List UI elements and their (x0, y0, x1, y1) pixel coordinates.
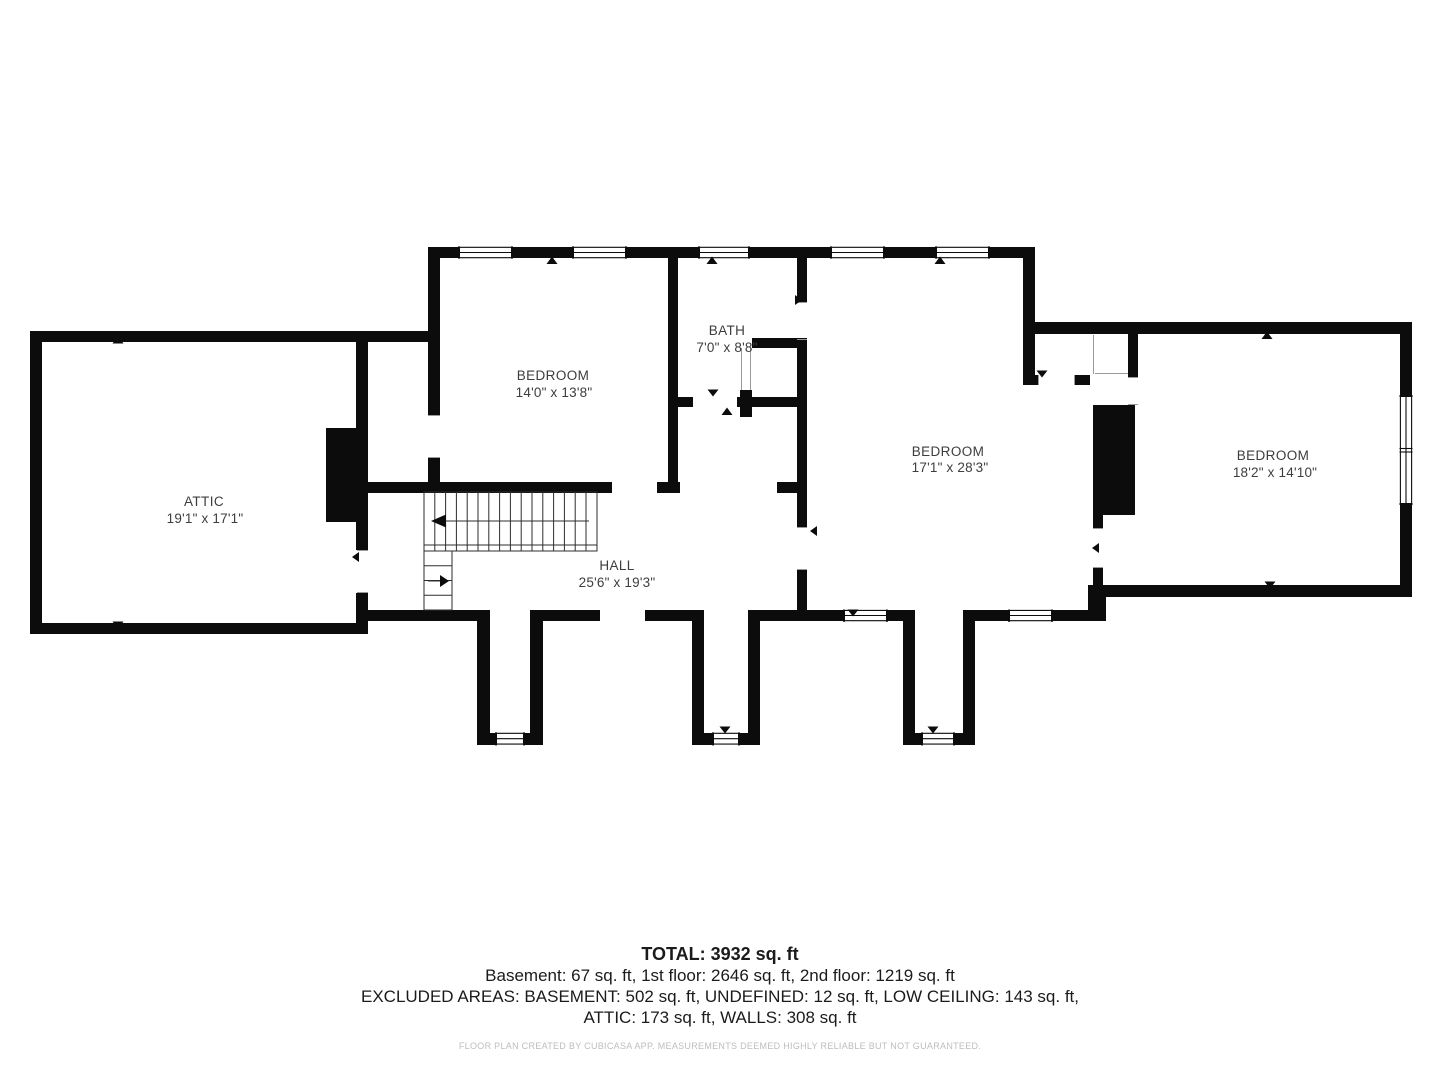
room-label-hall: HALL (599, 558, 634, 573)
room-label-attic: ATTIC (184, 494, 224, 509)
walls (30, 247, 1412, 745)
chimney-right (1093, 405, 1135, 515)
room-dims-hall: 25'6" x 19'3" (579, 575, 656, 590)
room-dims-bedroom-17: 17'1" x 28'3" (912, 460, 989, 475)
window (830, 246, 885, 258)
windows (458, 246, 1413, 745)
excluded-areas-text2: ATTIC: 173 sq. ft, WALLS: 308 sq. ft (0, 1007, 1440, 1028)
room-dims-attic: 19'1" x 17'1" (167, 511, 244, 526)
room-label-bedroom-14: BEDROOM (517, 368, 590, 383)
excluded-areas-text: EXCLUDED AREAS: BASEMENT: 502 sq. ft, UN… (0, 986, 1440, 1007)
window (458, 246, 513, 258)
floor-areas-text: Basement: 67 sq. ft, 1st floor: 2646 sq.… (0, 965, 1440, 986)
room-label-bedroom-17: BEDROOM (912, 444, 985, 459)
window (698, 246, 750, 258)
room-label-bath: BATH (709, 323, 746, 338)
chimney-blocks (326, 405, 1135, 522)
area-summary: TOTAL: 3932 sq. ft Basement: 67 sq. ft, … (0, 944, 1440, 1051)
total-area-text: TOTAL: 3932 sq. ft (0, 944, 1440, 965)
chimney-left (326, 428, 358, 522)
room-dims-bedroom-18: 18'2" x 14'10" (1233, 465, 1317, 480)
stair-entry-arrow (440, 575, 449, 587)
floor-plan-page: { "rooms": [ {"name": "ATTIC", "dims": "… (0, 0, 1440, 1080)
window (572, 246, 627, 258)
floor-plan-drawing: ATTIC 19'1" x 17'1" BEDROOM 14'0" x 13'8… (0, 0, 1440, 820)
disclaimer-text: FLOOR PLAN CREATED BY CUBICASA APP. MEAS… (0, 1041, 1440, 1051)
room-dims-bedroom-14: 14'0" x 13'8" (516, 385, 593, 400)
dormer-window (495, 732, 525, 745)
dormer-window (921, 732, 955, 745)
dormer-window (712, 732, 740, 745)
staircase (424, 492, 597, 610)
room-label-bedroom-18: BEDROOM (1237, 448, 1310, 463)
window (935, 246, 990, 258)
window (1008, 610, 1053, 622)
room-dims-bath: 7'0" x 8'8" (696, 340, 757, 355)
stair-up-arrow (431, 515, 446, 528)
window-vertical (1400, 395, 1413, 505)
